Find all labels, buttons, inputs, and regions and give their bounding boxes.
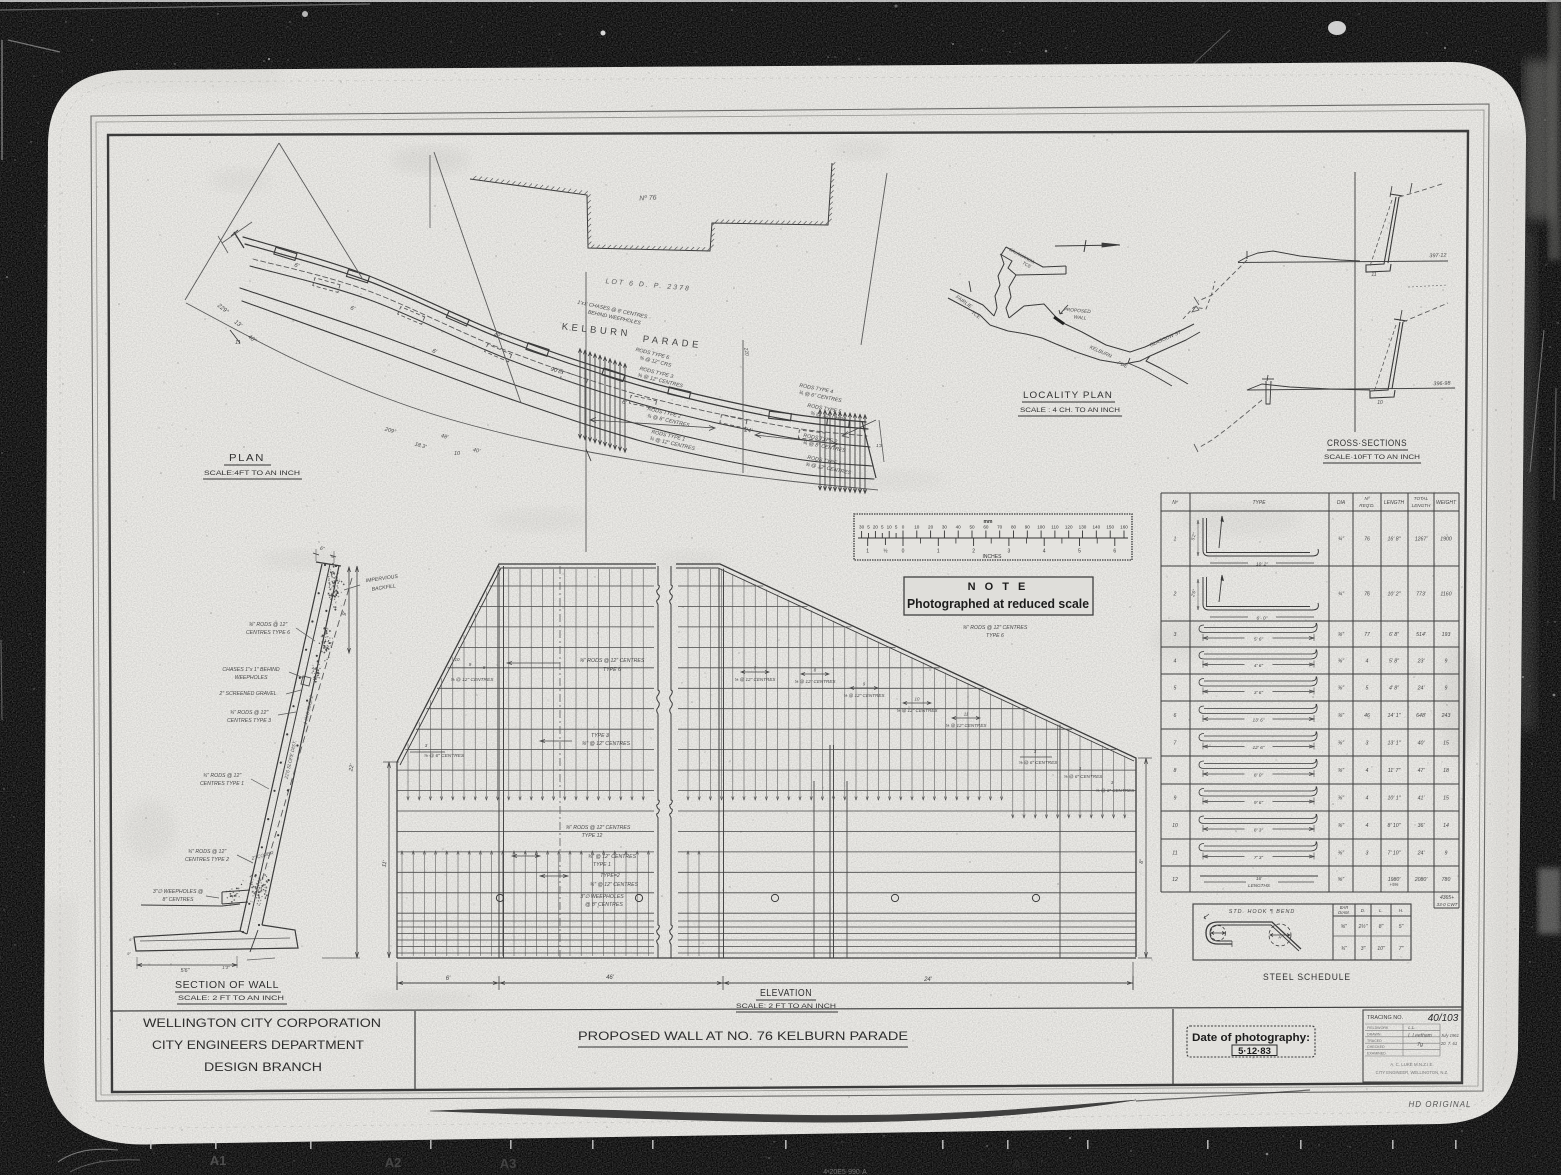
svg-text:10: 10	[1172, 823, 1178, 829]
svg-text:3"∅ WEEPHOLES @: 3"∅ WEEPHOLES @	[153, 889, 203, 895]
svg-text:11' 7": 11' 7"	[1388, 768, 1402, 774]
svg-text:8' 3": 8' 3"	[1254, 828, 1264, 834]
svg-text:46': 46'	[606, 975, 615, 981]
svg-text:24': 24'	[923, 977, 933, 983]
svg-text:11: 11	[235, 340, 241, 346]
svg-text:9: 9	[469, 662, 472, 667]
svg-text:1'3: 1'3	[876, 443, 882, 448]
svg-text:Date of photography:: Date of photography:	[1192, 1032, 1310, 1044]
svg-text:5·12·83: 5·12·83	[1238, 1046, 1271, 1057]
svg-text:@ 8" CENTRES: @ 8" CENTRES	[585, 902, 623, 908]
svg-text:CENTRES TYPE 1: CENTRES TYPE 1	[200, 781, 244, 787]
svg-text:3": 3"	[1361, 946, 1366, 952]
svg-text:+5%: +5%	[1390, 882, 1399, 887]
svg-text:0: 0	[902, 525, 905, 530]
svg-text:46: 46	[1364, 713, 1370, 719]
svg-text:10: 10	[915, 697, 920, 702]
svg-text:648': 648'	[1416, 713, 1427, 719]
svg-text:8" CENTRES: 8" CENTRES	[163, 897, 194, 903]
svg-text:L.: L.	[1379, 908, 1383, 913]
svg-text:A2: A2	[385, 1155, 402, 1170]
svg-text:40: 40	[956, 525, 962, 530]
svg-text:5: 5	[881, 525, 884, 530]
svg-text:8: 8	[1174, 768, 1177, 774]
svg-text:CENTRES TYPE 2: CENTRES TYPE 2	[185, 857, 229, 863]
svg-text:3: 3	[1366, 851, 1369, 857]
svg-text:243: 243	[1441, 713, 1451, 719]
svg-text:DIA: DIA	[1337, 500, 1346, 506]
svg-text:5' 6": 5' 6"	[1254, 637, 1264, 643]
svg-text:3: 3	[1366, 741, 1369, 747]
svg-text:10: 10	[454, 451, 461, 457]
svg-text:15: 15	[1443, 796, 1449, 802]
svg-text:A. C. LUKE M.N.Z.I.E.: A. C. LUKE M.N.Z.I.E.	[1390, 1062, 1433, 1067]
svg-text:11: 11	[964, 712, 969, 717]
svg-text:10": 10"	[1377, 946, 1385, 952]
svg-text:3"∅ WEEPHOLES: 3"∅ WEEPHOLES	[580, 894, 624, 900]
svg-text:TYPE 3: TYPE 3	[591, 733, 609, 739]
svg-text:76: 76	[1364, 537, 1370, 543]
svg-text:9: 9	[1445, 659, 1448, 665]
svg-text:1: 1	[1174, 537, 1177, 543]
svg-text:8' 0": 8' 0"	[1254, 773, 1264, 779]
svg-text:24': 24'	[1417, 851, 1426, 857]
svg-text:5": 5"	[1399, 924, 1404, 930]
svg-text:7": 7"	[1399, 946, 1404, 952]
svg-text:SCALE: 2 FT TO AN INCH: SCALE: 2 FT TO AN INCH	[178, 995, 284, 1002]
svg-text:90: 90	[1025, 525, 1031, 530]
svg-text:3' 6": 3' 6"	[1254, 690, 1264, 696]
svg-text:3: 3	[1174, 632, 1177, 638]
svg-text:150: 150	[1106, 525, 1114, 530]
svg-text:13' 6": 13' 6"	[1253, 718, 1265, 724]
svg-text:D.: D.	[1361, 908, 1365, 913]
svg-text:TYPE: TYPE	[1252, 500, 1266, 506]
svg-text:40/103: 40/103	[1428, 1013, 1459, 1024]
svg-text:LENGTH: LENGTH	[1384, 500, 1405, 506]
svg-text:7' 10": 7' 10"	[1388, 851, 1402, 857]
svg-text:20: 20	[873, 525, 879, 530]
svg-text:30: 30	[942, 525, 948, 530]
svg-text:SCALE : 4 CH. TO AN INCH: SCALE : 4 CH. TO AN INCH	[1020, 407, 1120, 414]
svg-text:LOCALITY PLAN: LOCALITY PLAN	[1023, 390, 1113, 400]
svg-text:13' 1": 13' 1"	[1388, 741, 1402, 747]
svg-text:20. 7. 61: 20. 7. 61	[1440, 1041, 1457, 1046]
svg-text:6: 6	[1174, 713, 1177, 719]
svg-text:5: 5	[895, 525, 898, 530]
svg-text:10: 10	[454, 657, 460, 662]
svg-text:2: 2	[972, 549, 975, 555]
svg-text:A1: A1	[210, 1153, 227, 1168]
svg-text:⅜" @ 12" CENTRES: ⅜" @ 12" CENTRES	[582, 741, 631, 747]
svg-text:36': 36'	[1418, 823, 1426, 829]
svg-text:INCHES: INCHES	[983, 554, 1003, 560]
svg-text:⅜ @ 12" CENTRES: ⅜ @ 12" CENTRES	[945, 723, 987, 728]
svg-text:5: 5	[867, 525, 870, 530]
svg-text:TOTAL: TOTAL	[1414, 496, 1429, 501]
svg-text:160: 160	[1120, 525, 1128, 530]
svg-text:9: 9	[1445, 686, 1448, 692]
svg-text:L.Leetham: L.Leetham	[1408, 1033, 1432, 1039]
svg-text:⅜ @ 12" CENTRES: ⅜ @ 12" CENTRES	[734, 677, 776, 682]
svg-text:6' 8": 6' 8"	[1389, 632, 1400, 638]
svg-text:⅜ @ 12" CENTRES: ⅜ @ 12" CENTRES	[794, 679, 836, 684]
svg-text:CENTRES TYPE 3: CENTRES TYPE 3	[227, 718, 271, 724]
svg-text:CITY ENGINEER, WELLINGTON, N.Z: CITY ENGINEER, WELLINGTON, N.Z.	[1376, 1070, 1449, 1075]
svg-text:HD ORIGINAL: HD ORIGINAL	[1408, 1100, 1471, 1109]
svg-text:REQ'D.: REQ'D.	[1359, 503, 1374, 508]
svg-text:140: 140	[1092, 525, 1100, 530]
svg-text:6": 6"	[129, 937, 133, 942]
svg-text:¾": ¾"	[1341, 946, 1347, 952]
svg-text:47': 47'	[1418, 768, 1426, 774]
svg-text:130: 130	[1079, 525, 1087, 530]
svg-text:SCALE·10FT TO AN INCH: SCALE·10FT TO AN INCH	[1324, 454, 1420, 461]
svg-text:L.L.: L.L.	[1408, 1025, 1416, 1030]
svg-text:1900: 1900	[1440, 537, 1452, 543]
svg-text:Nº 76: Nº 76	[639, 195, 657, 203]
svg-text:SCALE:4FT TO AN INCH: SCALE:4FT TO AN INCH	[204, 470, 300, 477]
svg-text:⅜ @ 6" CENTRES: ⅜ @ 6" CENTRES	[1064, 774, 1103, 779]
svg-text:Photographed at reduced scale: Photographed at reduced scale	[907, 596, 1089, 611]
svg-text:WELLINGTON CITY CORPO: WELLINGTON CITY CORPORATION	[143, 1016, 381, 1030]
svg-text:4: 4	[1366, 659, 1369, 665]
svg-text:SECTION OF WALL: SECTION OF WALL	[175, 980, 279, 991]
svg-text:14: 14	[1443, 823, 1449, 829]
svg-text:TYPE 6: TYPE 6	[986, 633, 1004, 639]
svg-text:STD. HOOK ¶ BEND: STD. HOOK ¶ BEND	[1229, 909, 1296, 915]
svg-text:⅜ @ 12" CENTRES: ⅜ @ 12" CENTRES	[843, 693, 885, 698]
svg-text:⅜ @ 6" CENTRES: ⅜ @ 6" CENTRES	[1019, 760, 1058, 765]
svg-text:1160: 1160	[1440, 592, 1451, 598]
svg-text:397·12: 397·12	[1429, 253, 1446, 260]
svg-text:10' 1": 10' 1"	[1388, 796, 1402, 802]
svg-text:LENGTH: LENGTH	[1412, 503, 1431, 508]
svg-text:5: 5	[1366, 686, 1369, 692]
svg-text:4365+: 4365+	[1440, 895, 1454, 901]
svg-text:396·98: 396·98	[1433, 381, 1451, 388]
svg-text:H.: H.	[1399, 908, 1403, 913]
svg-text:PROPOSED WALL AT NO. 76: PROPOSED WALL AT NO. 76 KELBURN PARADE	[578, 1029, 908, 1043]
svg-text:TYPE 1: TYPE 1	[593, 862, 611, 868]
svg-text:2" SCREENED GRAVEL: 2" SCREENED GRAVEL	[218, 691, 276, 697]
svg-text:9: 9	[1174, 796, 1177, 802]
svg-text:4: 4	[1366, 796, 1369, 802]
svg-text:12' 6": 12' 6"	[1253, 745, 1265, 751]
svg-text:780: 780	[1442, 877, 1451, 883]
svg-text:DRAWN: DRAWN	[1367, 1032, 1381, 1036]
svg-text:¾" @ 12" CENTRES: ¾" @ 12" CENTRES	[588, 854, 637, 860]
svg-text:193: 193	[1442, 632, 1451, 638]
svg-text:H: H	[1279, 935, 1282, 940]
svg-text:ELEVATION: ELEVATION	[760, 988, 812, 999]
svg-text:Nº: Nº	[1172, 500, 1178, 506]
svg-text:8": 8"	[1379, 924, 1384, 930]
svg-text:TYPE 6: TYPE 6	[603, 667, 621, 673]
svg-text:Nº: Nº	[1365, 496, 1370, 501]
svg-text:80: 80	[1011, 525, 1017, 530]
svg-text:5' 8": 5' 8"	[1389, 659, 1400, 665]
svg-text:1: 1	[937, 549, 940, 555]
svg-text:⅝": ⅝"	[1341, 924, 1347, 930]
svg-text:33·0 CWT: 33·0 CWT	[1437, 902, 1459, 907]
svg-text:⅜ @ 6" CENTRES: ⅜ @ 6" CENTRES	[424, 753, 465, 759]
svg-text:TYPE 12: TYPE 12	[582, 833, 603, 839]
svg-text:TRACED: TRACED	[1367, 1039, 1382, 1043]
svg-text:10: 10	[914, 525, 920, 530]
svg-text:4·20E5·990·A: 4·20E5·990·A	[823, 1169, 867, 1175]
svg-text:4: 4	[1043, 549, 1046, 555]
svg-text:30: 30	[859, 525, 865, 530]
svg-text:2080': 2080'	[1414, 877, 1429, 883]
svg-text:CROSS·SECTIONS: CROSS·SECTIONS	[1327, 438, 1407, 448]
svg-text:9: 9	[1445, 851, 1448, 857]
svg-text:A3: A3	[500, 1156, 517, 1171]
svg-text:WALL: WALL	[1073, 314, 1087, 321]
svg-text:5: 5	[1078, 549, 1081, 555]
svg-text:PLAN: PLAN	[229, 452, 265, 464]
svg-text:4' 6": 4' 6"	[1254, 663, 1264, 669]
svg-text:3: 3	[1008, 549, 1011, 555]
svg-text:5: 5	[1174, 686, 1177, 692]
svg-text:LENGTHS: LENGTHS	[1248, 883, 1271, 888]
svg-text:50: 50	[969, 525, 975, 530]
svg-text:4: 4	[1366, 823, 1369, 829]
svg-text:N O T E: N O T E	[968, 581, 1029, 593]
svg-text:76: 76	[1364, 592, 1370, 598]
svg-text:¾" RODS @ 12": ¾" RODS @ 12"	[203, 773, 243, 779]
svg-text:FIELDWORK: FIELDWORK	[1367, 1026, 1389, 1030]
svg-text:⅜" RODS @ 12": ⅜" RODS @ 12"	[249, 622, 289, 628]
svg-text:10' 2": 10' 2"	[1388, 592, 1402, 598]
svg-text:24': 24'	[1417, 686, 1426, 692]
svg-text:6'- 0": 6'- 0"	[1257, 616, 1268, 622]
svg-text:16' 8": 16' 8"	[1388, 537, 1402, 543]
svg-text:9": 9"	[127, 951, 131, 956]
svg-text:40': 40'	[1418, 741, 1426, 747]
svg-text:10: 10	[887, 525, 893, 530]
svg-text:A5: A5	[1012, 1157, 1028, 1171]
svg-text:CITY ENGINEERS DEPARTMENT: CITY ENGINEERS DEPARTMENT	[152, 1038, 365, 1052]
svg-text:15: 15	[1443, 741, 1449, 747]
svg-text:July 1961: July 1961	[1440, 1033, 1459, 1038]
svg-text:4' 8": 4' 8"	[1389, 686, 1400, 692]
svg-text:18: 18	[1443, 768, 1449, 774]
svg-text:4: 4	[1366, 768, 1369, 774]
svg-text:120: 120	[1065, 525, 1073, 530]
svg-text:9' 6": 9' 6"	[1254, 800, 1264, 806]
svg-text:11: 11	[1172, 851, 1177, 857]
svg-text:⅜ @ 6" CENTRES: ⅜ @ 6" CENTRES	[1096, 788, 1135, 793]
svg-text:8' 10": 8' 10"	[1388, 823, 1402, 829]
svg-text:⅜" RODS @ 12" CENTRES: ⅜" RODS @ 12" CENTRES	[566, 825, 631, 831]
svg-text:DESIGN BRANCH: DESIGN BRANCH	[204, 1060, 322, 1074]
svg-text:2: 2	[1173, 592, 1177, 598]
svg-text:3: 3	[425, 743, 428, 748]
svg-text:¾" @ 12" CENTRES: ¾" @ 12" CENTRES	[590, 882, 639, 888]
svg-text:EXAMINED: EXAMINED	[1367, 1052, 1386, 1056]
svg-text:TRACING NO.: TRACING NO.	[1367, 1015, 1404, 1021]
svg-text:1267': 1267'	[1415, 537, 1429, 543]
svg-text:11: 11	[1371, 272, 1376, 278]
svg-text:2½": 2½"	[1358, 923, 1368, 930]
svg-text:WEEPHOLES: WEEPHOLES	[235, 675, 268, 681]
svg-text:41': 41'	[1418, 796, 1426, 802]
svg-text:10' 2": 10' 2"	[1256, 562, 1268, 568]
svg-text:1'3": 1'3"	[222, 965, 230, 970]
svg-text:TYPE=2: TYPE=2	[600, 873, 620, 879]
svg-text:4: 4	[1174, 659, 1177, 665]
svg-text:110: 110	[1051, 525, 1059, 530]
svg-text:5'6": 5'6"	[180, 968, 190, 974]
svg-text:14' 1": 14' 1"	[1388, 713, 1402, 719]
svg-text:⅜" RODS @ 12" CENTRES: ⅜" RODS @ 12" CENTRES	[580, 658, 645, 664]
svg-text:7' 3": 7' 3"	[1254, 855, 1264, 861]
svg-text:60: 60	[983, 525, 989, 530]
svg-text:6: 6	[1113, 549, 1116, 555]
svg-text:1: 1	[866, 549, 869, 555]
svg-text:70: 70	[997, 525, 1003, 530]
svg-text:STEEL SCHEDULE: STEEL SCHEDULE	[1263, 972, 1351, 983]
svg-text:12: 12	[1172, 877, 1178, 883]
svg-text:514': 514'	[1416, 632, 1427, 638]
svg-text:⅜ @ 12" CENTRES: ⅜ @ 12" CENTRES	[896, 708, 938, 713]
svg-text:DIAM.: DIAM.	[1338, 910, 1350, 915]
svg-text:¾" RODS @ 12": ¾" RODS @ 12"	[230, 710, 270, 716]
svg-text:8: 8	[483, 665, 486, 670]
svg-text:16': 16'	[1256, 876, 1262, 881]
svg-text:0: 0	[902, 549, 905, 555]
svg-text:7g: 7g	[1417, 1042, 1424, 1048]
svg-text:773': 773'	[1416, 592, 1427, 598]
svg-text:¾" RODS @ 12": ¾" RODS @ 12"	[188, 849, 228, 855]
svg-text:CENTRES TYPE 6: CENTRES TYPE 6	[246, 630, 290, 636]
svg-text:20: 20	[928, 525, 934, 530]
svg-text:WEIGHT: WEIGHT	[1436, 500, 1457, 506]
svg-text:23': 23'	[1417, 659, 1426, 665]
svg-text:CHECKED: CHECKED	[1367, 1045, 1385, 1049]
svg-text:10: 10	[1377, 400, 1383, 406]
svg-text:⅜" RODS @ 12" CENTRES: ⅜" RODS @ 12" CENTRES	[963, 625, 1028, 631]
svg-text:100: 100	[1037, 525, 1045, 530]
svg-text:⅜ @ 12" CENTRES: ⅜ @ 12" CENTRES	[451, 677, 495, 683]
svg-text:CHASES 1"x 1" BEHIND: CHASES 1"x 1" BEHIND	[222, 667, 280, 673]
